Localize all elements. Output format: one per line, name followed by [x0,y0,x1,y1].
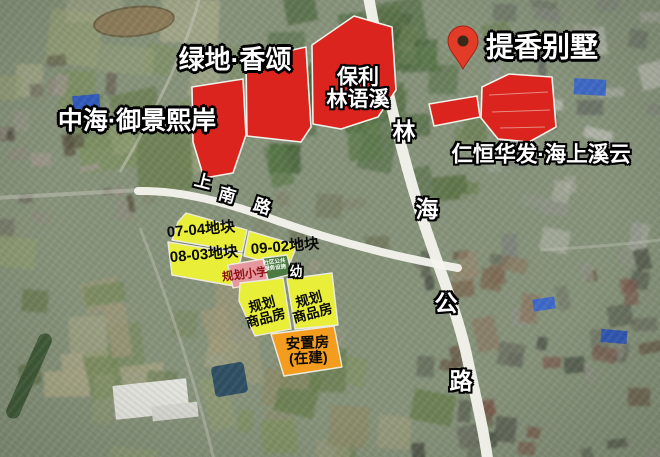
label-baoli: 保利 林语溪 [327,67,390,111]
label-linhai-char-1: 林 [393,119,416,143]
development-area-renheng-west [429,96,480,126]
label-linhai-char-2: 海 [416,197,439,221]
location-pin-icon [448,26,478,69]
label-linhai-char-4: 路 [450,369,473,393]
minor-road [540,240,660,250]
label-resettlement-housing: 安置房 (在建) [285,336,330,369]
minor-road [0,190,140,198]
development-area-renheng-east [481,74,556,142]
label-tixiang-villa: 提香别墅 [486,32,598,61]
label-greenland: 绿地·香颂 [179,46,292,73]
label-zhonghai: 中海·御景熙岸 [58,108,216,134]
label-linhai-char-3: 公 [435,291,458,315]
map: 绿地·香颂 提香别墅 中海·御景熙岸 保利 林语溪 仁恒华发·海上溪云 林 海 … [0,0,660,457]
label-renheng: 仁恒华发·海上溪云 [451,144,630,167]
label-kindergarten: 幼 [289,265,302,279]
minor-road [120,0,200,172]
